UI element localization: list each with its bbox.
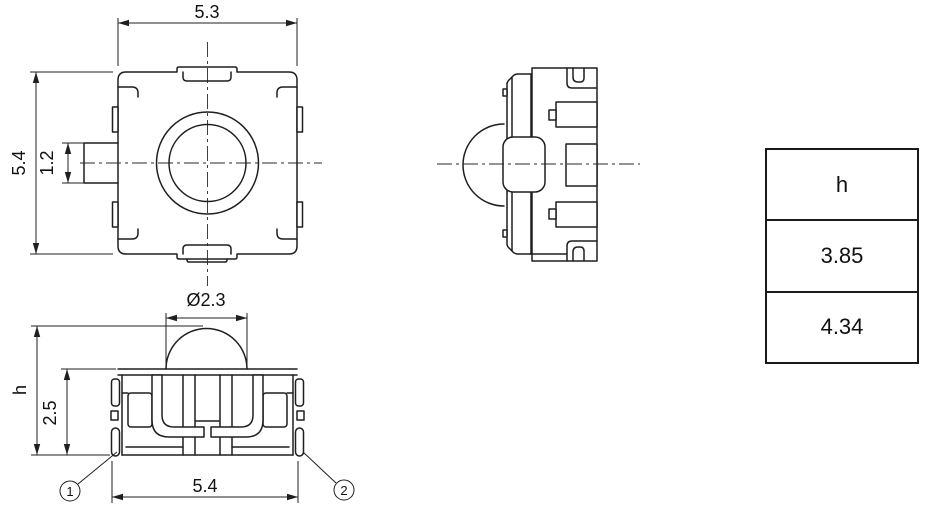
callout-leader — [303, 452, 336, 483]
corner-detail — [277, 87, 297, 97]
base-width-dim: 5.4 — [192, 476, 217, 496]
dome-button-profile — [463, 124, 504, 206]
tab-fold-line — [183, 245, 231, 254]
top-view-height-dim: 5.4 — [9, 150, 29, 175]
j-terminal — [211, 375, 263, 437]
spec-table-row: 4.34 — [767, 291, 917, 362]
terminal-width-dim: 1.2 — [37, 150, 57, 175]
callout-leader — [78, 452, 117, 484]
corner-detail — [118, 229, 138, 239]
contact-window — [128, 393, 152, 427]
technical-drawing-page: 5.3 5.4 1.2 — [0, 0, 936, 508]
dome-diameter-dim: Ø2.3 — [186, 290, 225, 310]
side-terminal — [556, 102, 597, 127]
body-height-dim: 2.5 — [40, 400, 60, 425]
side-clip — [112, 379, 120, 406]
corner-detail — [118, 87, 138, 97]
cover-tick — [503, 89, 507, 96]
tab-fold-line — [183, 72, 231, 81]
edge-tab — [113, 202, 119, 227]
contact-window — [263, 393, 287, 427]
side-view — [437, 68, 640, 261]
j-terminal — [152, 375, 204, 437]
spec-table-header: h — [767, 150, 917, 219]
edge-tab — [297, 107, 303, 132]
side-center-boss — [566, 144, 597, 186]
height-spec-table: h 3.85 4.34 — [765, 148, 919, 364]
side-clip — [296, 428, 304, 456]
top-view: 5.3 5.4 1.2 — [9, 2, 322, 286]
side-clip — [296, 379, 304, 406]
callout-2-label: 2 — [340, 483, 347, 498]
side-terminal-tip — [549, 209, 556, 219]
overall-height-dim: h — [10, 385, 30, 395]
cover-tick — [503, 230, 507, 237]
side-terminal-tip — [549, 110, 556, 120]
plunger-stem — [503, 137, 545, 192]
side-terminal — [556, 202, 597, 227]
edge-tab — [113, 107, 119, 132]
top-view-width-dim: 5.3 — [194, 2, 219, 22]
front-view: Ø2.3 h 2.5 5.4 1 2 — [10, 290, 354, 503]
edge-tab — [297, 202, 303, 227]
corner-detail — [277, 229, 297, 239]
dome-button — [166, 329, 247, 369]
callout-1-label: 1 — [66, 484, 73, 499]
side-clip-tab — [111, 411, 118, 420]
side-clip-tab — [297, 411, 304, 420]
side-clip — [112, 428, 120, 456]
center-column — [183, 375, 232, 455]
actuator-inner-circle — [169, 125, 246, 202]
spec-table-row: 3.85 — [767, 219, 917, 290]
